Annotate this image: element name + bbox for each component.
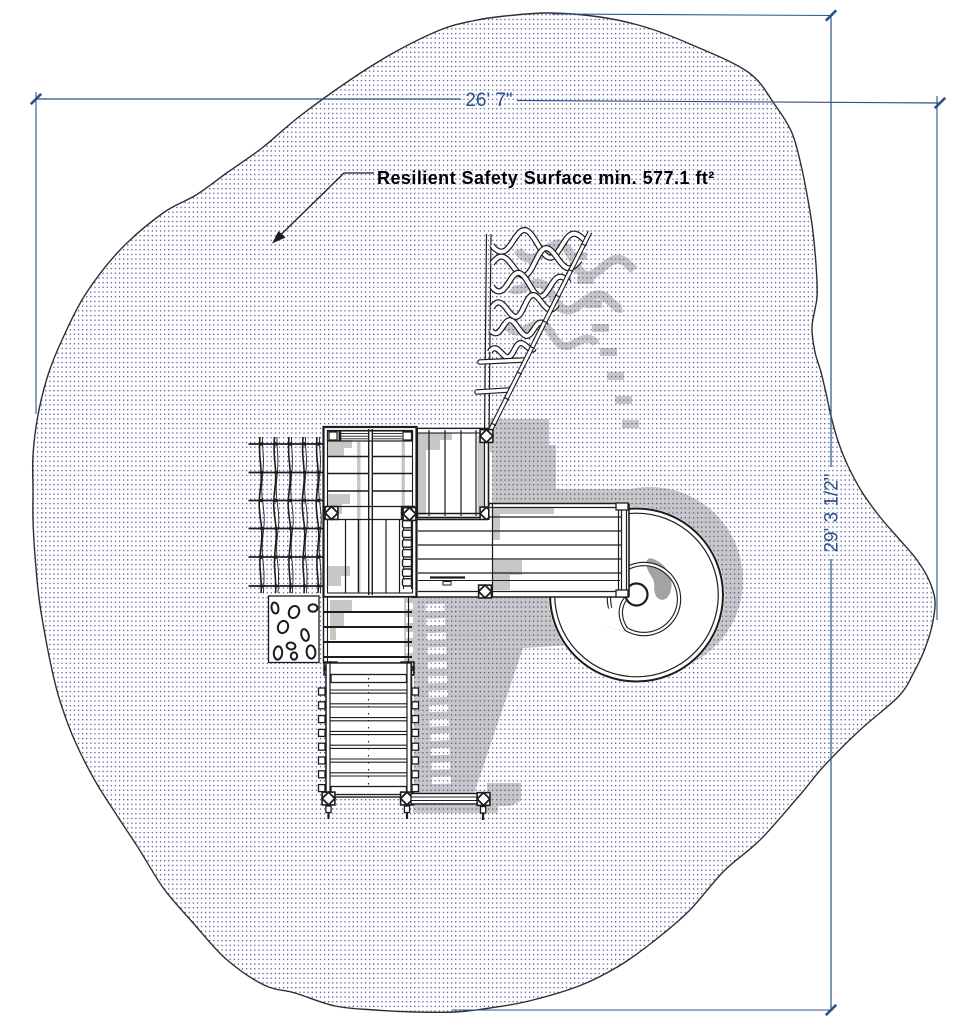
svg-text:26' 7": 26' 7" [465,90,512,111]
svg-text:29' 3 1/2": 29' 3 1/2" [822,473,843,552]
svg-text:Resilient Safety Surface min.: Resilient Safety Surface min. 577.1 ft² [377,168,715,188]
